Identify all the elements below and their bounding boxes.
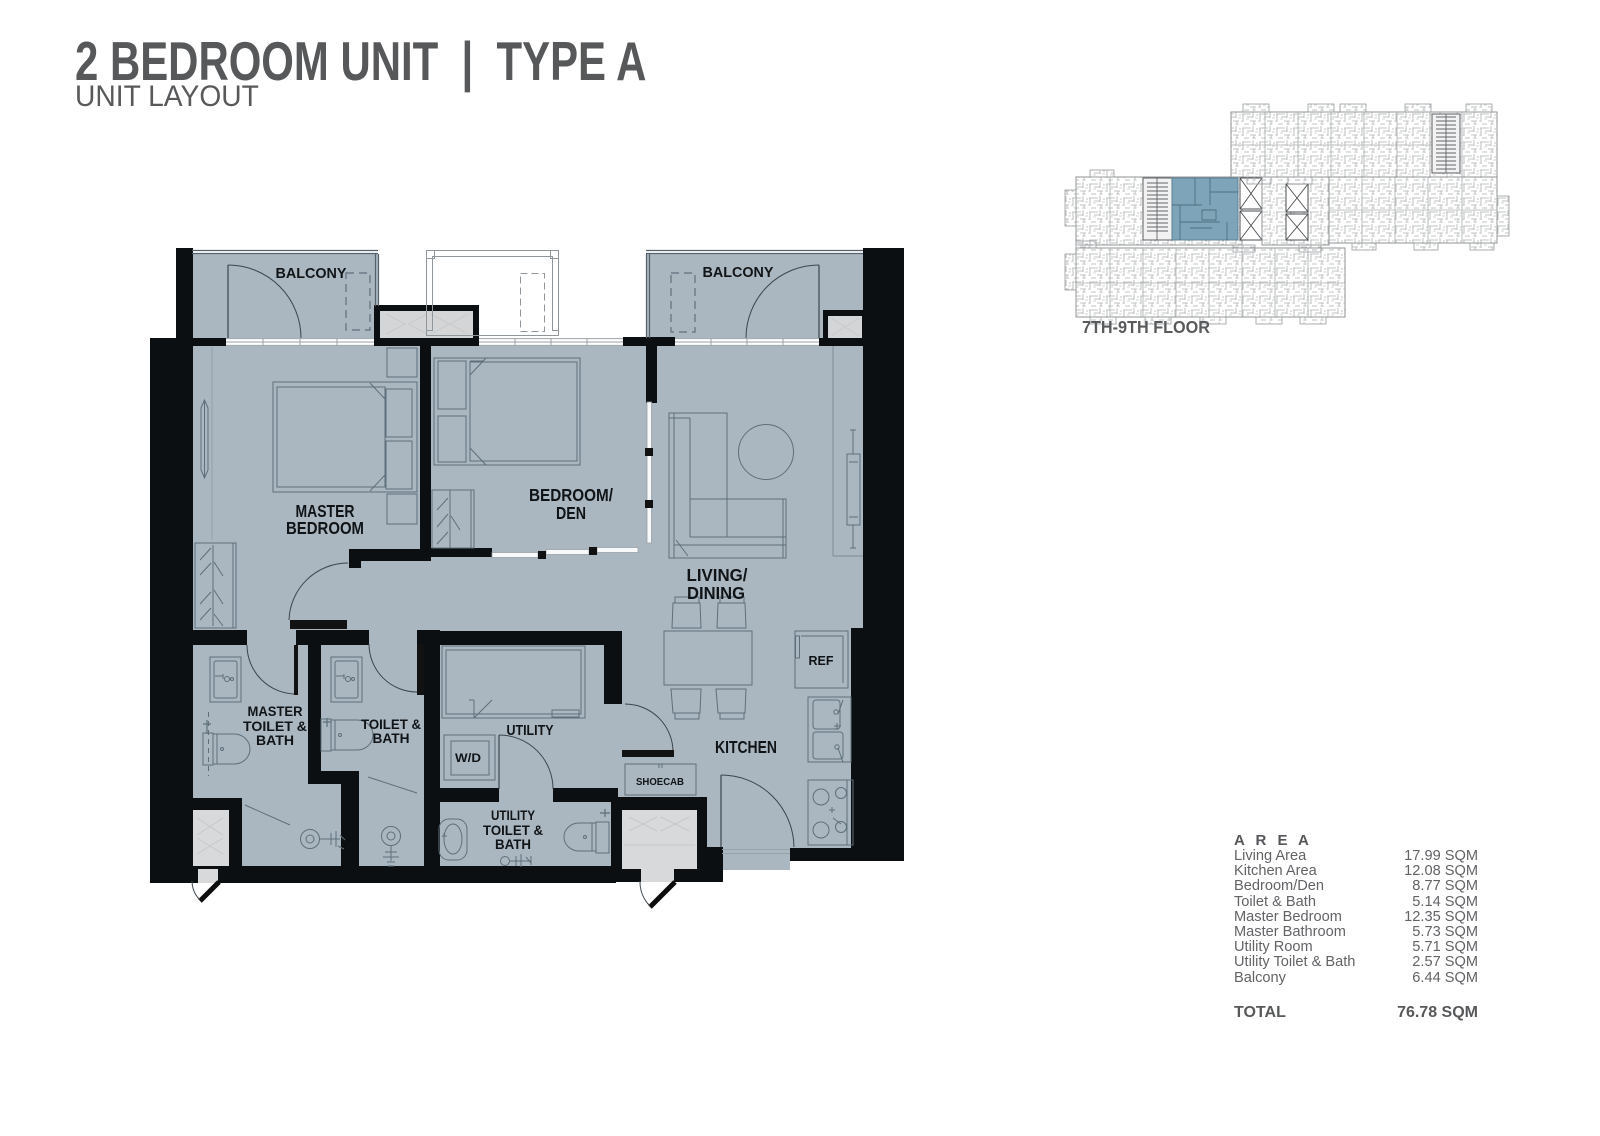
svg-text:DINING: DINING [687,583,745,603]
svg-text:BATH: BATH [373,731,410,746]
svg-text:LIVING/: LIVING/ [687,565,748,585]
svg-text:TOILET &: TOILET & [483,823,543,838]
svg-text:BALCONY: BALCONY [276,266,347,282]
svg-text:BEDROOM: BEDROOM [286,518,364,538]
svg-text:BALCONY: BALCONY [703,265,774,281]
svg-text:UTILITY: UTILITY [491,808,535,823]
svg-text:W/D: W/D [455,751,481,765]
svg-text:KITCHEN: KITCHEN [715,737,777,757]
svg-text:TOILET &: TOILET & [361,717,421,732]
svg-text:MASTER: MASTER [248,704,303,719]
svg-text:BEDROOM/: BEDROOM/ [529,485,613,505]
svg-text:TOILET &: TOILET & [243,719,307,734]
svg-text:DEN: DEN [556,503,586,523]
svg-text:BATH: BATH [495,837,531,852]
svg-text:SHOECAB: SHOECAB [636,776,684,788]
svg-text:BATH: BATH [256,733,294,748]
svg-text:7TH-9TH FLOOR: 7TH-9TH FLOOR [1082,317,1210,337]
svg-text:UTILITY: UTILITY [507,723,554,739]
svg-text:REF: REF [809,654,834,668]
